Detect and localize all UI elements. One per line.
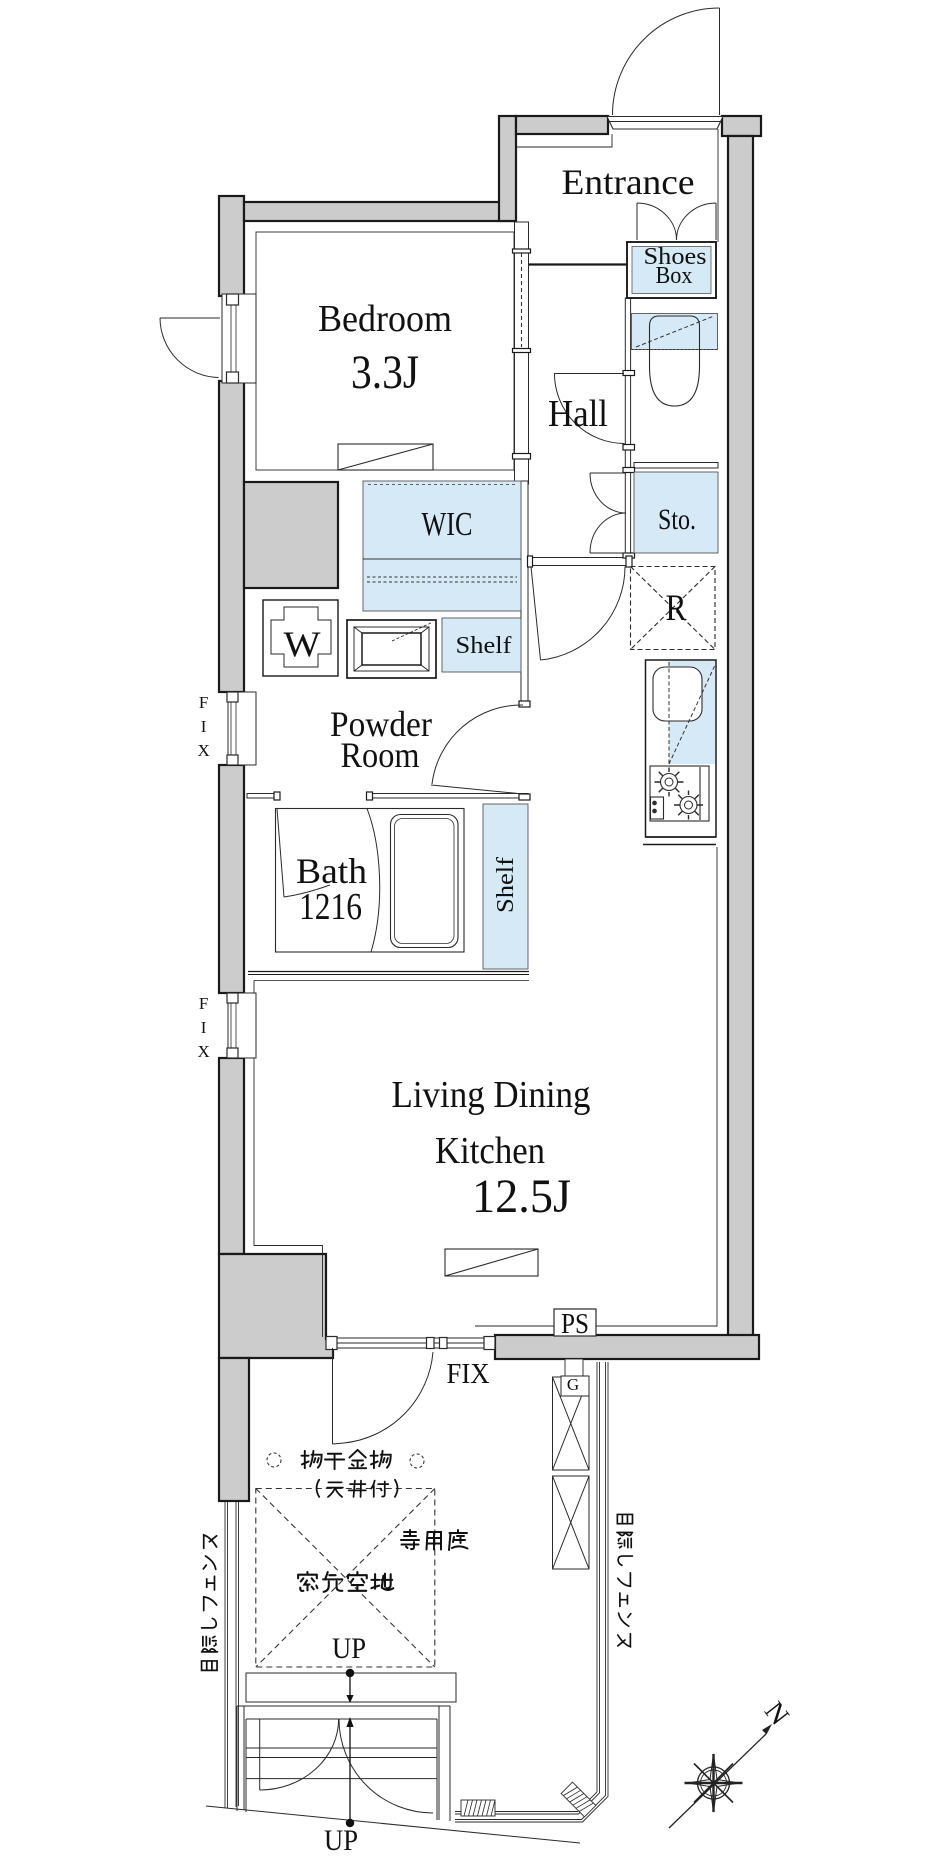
svg-text:FIX: FIX (447, 1359, 490, 1390)
svg-text:UP: UP (332, 1632, 366, 1665)
svg-text:Box: Box (656, 263, 693, 289)
svg-text:X: X (197, 741, 209, 760)
svg-text:R: R (666, 588, 687, 629)
svg-text:I: I (201, 717, 207, 736)
svg-text:F: F (199, 994, 208, 1013)
svg-text:Shelf: Shelf (456, 633, 512, 659)
svg-text:Sto.: Sto. (658, 503, 696, 536)
svg-text:F: F (199, 693, 208, 712)
svg-text:G: G (567, 1375, 579, 1394)
svg-text:W: W (284, 624, 321, 664)
svg-text:WIC: WIC (422, 506, 473, 543)
svg-text:X: X (197, 1042, 209, 1061)
svg-text:Living Dining: Living Dining (392, 1074, 591, 1116)
svg-text:Bedroom: Bedroom (318, 298, 452, 340)
svg-text:Kitchen: Kitchen (435, 1130, 545, 1172)
svg-text:Entrance: Entrance (562, 162, 695, 202)
svg-text:UP: UP (324, 1824, 358, 1857)
svg-text:1216: 1216 (299, 886, 362, 928)
svg-text:N: N (758, 1696, 795, 1731)
svg-text:Bath: Bath (296, 851, 367, 891)
svg-text:Room: Room (341, 735, 420, 775)
svg-text:Shelf: Shelf (493, 857, 519, 913)
svg-text:3.3J: 3.3J (351, 346, 419, 399)
svg-text:PS: PS (561, 1309, 589, 1340)
svg-text:I: I (201, 1018, 207, 1037)
svg-text:12.5J: 12.5J (472, 1170, 571, 1223)
svg-text:Hall: Hall (548, 393, 608, 435)
